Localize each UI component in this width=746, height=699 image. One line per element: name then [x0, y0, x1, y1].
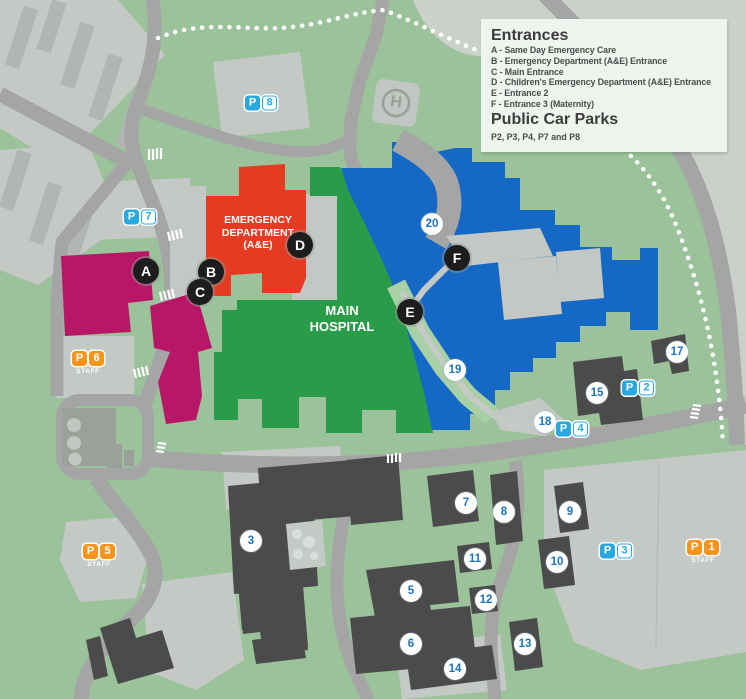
legend-entry-e: E - Entrance 2: [491, 88, 717, 99]
number-marker-10: 10: [546, 551, 568, 573]
car-park-label-p3: P3: [600, 544, 632, 559]
car-park-staff-label: STAFF: [687, 557, 719, 564]
legend-panel: Entrances A - Same Day Emergency Care B …: [481, 19, 727, 152]
car-park-letter-box: P: [600, 544, 615, 559]
car-park-label-p4: P4: [556, 422, 588, 437]
number-marker-20: 20: [421, 213, 443, 235]
car-park-letter-box: P: [622, 381, 637, 396]
number-marker-17: 17: [666, 341, 688, 363]
legend-car-parks-title: Public Car Parks: [491, 110, 717, 129]
car-park-number-box: 2: [639, 381, 654, 396]
car-park-staff-label: STAFF: [83, 561, 115, 568]
entrance-marker-e: E: [397, 299, 423, 325]
number-marker-14: 14: [444, 658, 466, 680]
number-marker-3: 3: [240, 530, 262, 552]
entrance-marker-d: D: [287, 232, 313, 258]
car-park-label-p7: P7: [124, 210, 156, 225]
car-park-label-p8: P8: [245, 96, 277, 111]
helipad-h-label: H: [389, 93, 403, 112]
car-park-number-box: 8: [262, 96, 277, 111]
number-marker-9: 9: [559, 501, 581, 523]
car-park-letter-box: P: [72, 351, 87, 366]
car-park-number-box: 1: [704, 540, 719, 555]
car-park-label-p2: P2: [622, 381, 654, 396]
number-marker-5: 5: [400, 580, 422, 602]
number-marker-19: 19: [444, 359, 466, 381]
car-park-label-p6: P6STAFF: [72, 351, 104, 375]
entrance-marker-c: C: [187, 279, 213, 305]
car-park-number-box: 5: [100, 544, 115, 559]
number-marker-8: 8: [493, 501, 515, 523]
entrance-marker-a: A: [133, 258, 159, 284]
number-marker-15: 15: [586, 382, 608, 404]
mh-label-line1: MAIN: [283, 303, 401, 319]
legend-entry-d: D - Children's Emergency Department (A&E…: [491, 77, 717, 88]
main-hospital-label: MAIN HOSPITAL: [283, 303, 401, 334]
mh-label-line2: HOSPITAL: [283, 319, 401, 335]
legend-entry-f: F - Entrance 3 (Maternity): [491, 99, 717, 110]
number-marker-13: 13: [514, 633, 536, 655]
courtyard-garden: [286, 520, 326, 570]
car-park-letter-box: P: [124, 210, 139, 225]
car-park-letter-box: P: [83, 544, 98, 559]
entrance-marker-f: F: [444, 245, 470, 271]
legend-title: Entrances: [491, 26, 717, 45]
legend-entry-b: B - Emergency Department (A&E) Entrance: [491, 56, 717, 67]
legend-car-parks-note: P2, P3, P4, P7 and P8: [491, 131, 717, 143]
number-marker-12: 12: [475, 589, 497, 611]
legend-entry-c: C - Main Entrance: [491, 67, 717, 78]
number-marker-18: 18: [534, 411, 556, 433]
car-park-number-box: 7: [141, 210, 156, 225]
car-park-letter-box: P: [687, 540, 702, 555]
car-park-number-box: 6: [89, 351, 104, 366]
car-park-label-p1: P1STAFF: [687, 540, 719, 564]
hospital-map: EMERGENCY DEPARTMENT (A&E) MAIN HOSPITAL…: [0, 0, 746, 699]
car-park-letter-box: P: [245, 96, 260, 111]
number-marker-7: 7: [455, 492, 477, 514]
ed-label-line1: EMERGENCY: [206, 214, 310, 227]
car-park-staff-label: STAFF: [72, 368, 104, 375]
car-park-number-box: 4: [573, 422, 588, 437]
car-park-label-p5: P5STAFF: [83, 544, 115, 568]
legend-entry-a: A - Same Day Emergency Care: [491, 45, 717, 56]
car-park-number-box: 3: [617, 544, 632, 559]
number-marker-6: 6: [400, 633, 422, 655]
car-park-letter-box: P: [556, 422, 571, 437]
number-marker-11: 11: [464, 548, 486, 570]
